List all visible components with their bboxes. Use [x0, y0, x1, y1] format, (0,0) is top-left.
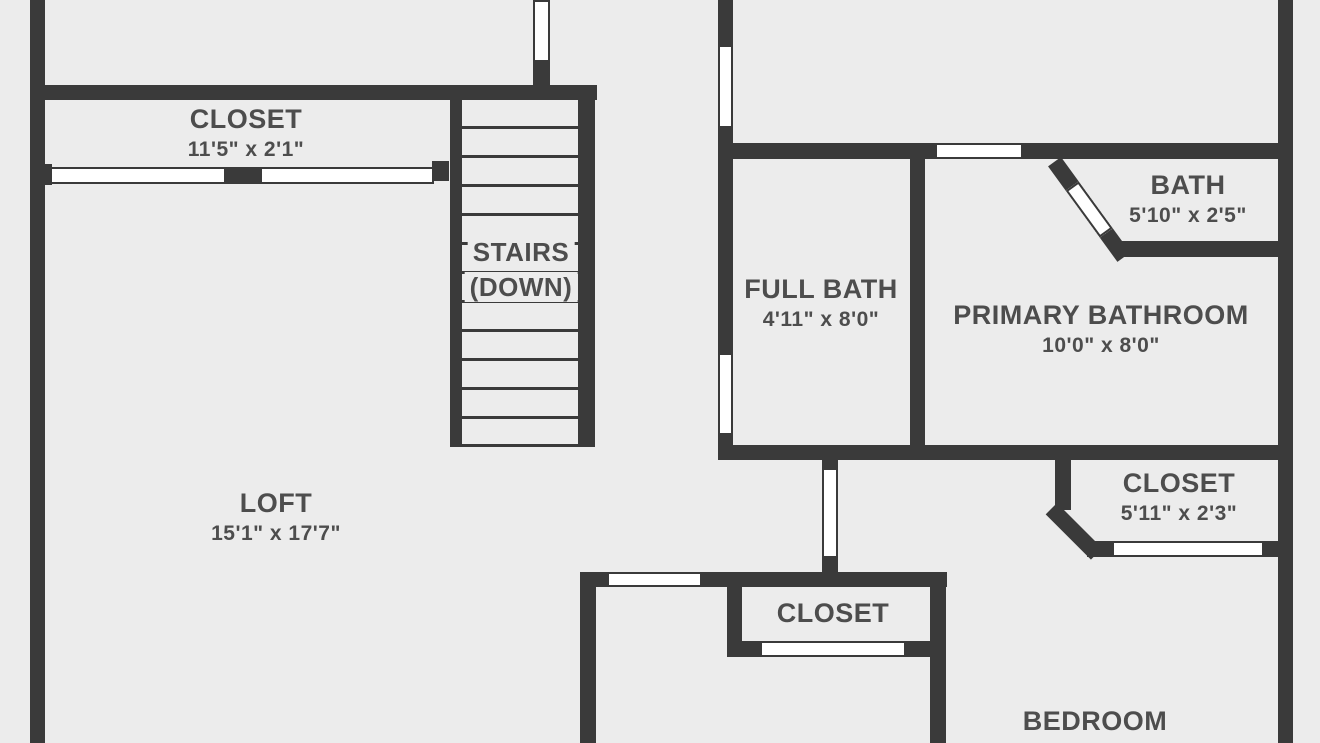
wall-stairs-left	[450, 100, 462, 447]
room-label-bedroom: BEDROOM	[1023, 704, 1168, 738]
wall-closet-top	[30, 85, 597, 100]
room-dimensions: 4'11" x 8'0"	[744, 306, 897, 333]
door-opening-primary-bathroom	[935, 143, 1023, 159]
closet-slider-right-cap	[432, 161, 449, 181]
floor-plan-canvas: CLOSET 11'5" x 2'1" STAIRS (DOWN) FULL B…	[0, 0, 1320, 743]
door-opening-top-divider	[533, 0, 550, 62]
room-dimensions: 15'1" x 17'7"	[211, 520, 341, 547]
room-name: BATH	[1129, 168, 1247, 202]
room-label-closet-right: CLOSET 5'11" x 2'3"	[1121, 466, 1238, 527]
room-dimensions: 5'10" x 2'5"	[1129, 202, 1247, 229]
wall-bedroom-left	[930, 572, 946, 743]
wall-bath-diagonal	[1048, 157, 1130, 262]
stairs-label-text: STAIRS	[468, 237, 574, 267]
door-opening-hall	[822, 468, 838, 558]
window-opening-bottom-room	[607, 572, 702, 587]
door-opening-full-bath	[718, 353, 733, 435]
room-label-loft: LOFT 15'1" x 17'7"	[211, 486, 341, 547]
wall-outer-right	[1278, 0, 1293, 743]
room-name: FULL BATH	[744, 272, 897, 306]
room-dimensions: 10'0" x 8'0"	[953, 332, 1249, 359]
door-opening-bath	[1066, 181, 1113, 237]
room-label-primary-bathroom: PRIMARY BATHROOM 10'0" x 8'0"	[953, 298, 1249, 359]
room-name: LOFT	[211, 486, 341, 520]
room-label-full-bath: FULL BATH 4'11" x 8'0"	[744, 272, 897, 333]
room-name: BEDROOM	[1023, 704, 1168, 738]
room-label-bath: BATH 5'10" x 2'5"	[1129, 168, 1247, 229]
room-name: CLOSET	[188, 102, 305, 136]
wall-bathrooms-bottom	[718, 445, 1293, 460]
room-dimensions: 11'5" x 2'1"	[188, 136, 305, 163]
room-name: PRIMARY BATHROOM	[953, 298, 1249, 332]
door-opening-top-room	[718, 45, 733, 128]
closet-slider-handle	[224, 167, 262, 184]
room-name: CLOSET	[1121, 466, 1238, 500]
room-label-stairs: STAIRS (DOWN)	[465, 235, 578, 305]
stairs-direction-text: (DOWN)	[465, 272, 578, 302]
door-opening-bottom-closet	[760, 641, 906, 657]
wall-outer-left	[30, 0, 45, 743]
wall-fullbath-primary-divider	[910, 159, 925, 460]
wall-bath-bottom	[1119, 241, 1293, 257]
room-name: CLOSET	[777, 596, 890, 630]
room-label-closet-bedroom: CLOSET	[777, 596, 890, 630]
wall-stairs-right	[578, 85, 595, 447]
wall-bottom-room-left	[580, 572, 596, 743]
room-label-closet-upper-left: CLOSET 11'5" x 2'1"	[188, 102, 305, 163]
room-dimensions: 5'11" x 2'3"	[1121, 500, 1238, 527]
door-opening-right-closet	[1112, 541, 1264, 557]
